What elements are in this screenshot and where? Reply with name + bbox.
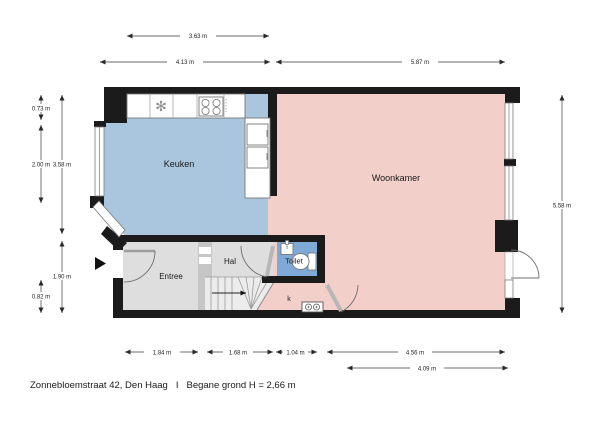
dim-top-2: 4.13 m (176, 60, 194, 66)
wall-entree-west-b (113, 278, 123, 314)
appliance-icon (247, 147, 268, 168)
wall-northwest-corner (104, 87, 127, 123)
sink-icon: ✻ (155, 98, 167, 114)
wall-toilet-south (262, 276, 325, 283)
window-cap (94, 121, 106, 127)
footer-caption: Zonnebloemstraat 42, Den HaagIBegane gro… (30, 380, 296, 391)
dim-bottom-1: 1.84 m (153, 350, 171, 356)
wall-toilet-east (317, 235, 325, 283)
wall-southeast-corner (505, 298, 520, 318)
dim-top-3: 5.87 m (411, 60, 429, 66)
woonkamer-label: Woonkamer (372, 173, 420, 183)
toilet-label: Toilet (285, 257, 303, 266)
wall-keuken-south (113, 235, 325, 242)
wall-east-mullion (504, 159, 516, 166)
garden-door-arc (511, 250, 539, 278)
chimney-breast (495, 220, 518, 252)
entree-label: Entree (159, 272, 183, 281)
entrance-arrow-icon (95, 257, 106, 270)
dim-left-5: 0.82 m (32, 295, 50, 301)
floor-plan: ✻ (0, 0, 600, 424)
dim-bottom-3: 1.04 m (286, 350, 304, 356)
closet-label: k (287, 296, 291, 303)
door-opening-entree (113, 250, 123, 278)
wall-northeast-corner (505, 87, 520, 103)
dim-right-1: 5.58 m (553, 204, 571, 210)
partition-jamb (199, 247, 211, 254)
washing-machine-icon (302, 302, 323, 312)
keuken-label: Keuken (164, 159, 195, 169)
appliance-handle (267, 153, 269, 160)
dim-left-4: 1.90 m (53, 275, 71, 281)
kitchen-counter (127, 94, 245, 118)
separator-text: I (176, 380, 179, 391)
wall-north (113, 87, 520, 94)
dim-bottom-2: 1.68 m (229, 350, 247, 356)
basin-tap (286, 241, 289, 245)
address-text: Zonnebloemstraat 42, Den Haag (30, 380, 168, 391)
partition-jamb (199, 257, 211, 264)
window-east-3 (505, 280, 513, 298)
entree-floor (117, 237, 198, 314)
door-opening-east (505, 252, 513, 280)
dim-left-2: 2.00 m (32, 163, 50, 169)
dim-bottom-4: 4.56 m (406, 350, 424, 356)
appliance-handle (267, 130, 269, 137)
appliance-icon (247, 124, 268, 145)
floor-detail-text: Begane grond H = 2,66 m (186, 380, 295, 391)
dim-left-3: 3.58 m (53, 163, 71, 169)
dim-left-1: 0.73 m (32, 107, 50, 113)
wall-entree-west-a (113, 240, 123, 250)
stove-icon (199, 97, 226, 116)
hal-label: Hal (224, 257, 236, 266)
dim-top-1: 3.63 m (189, 34, 207, 40)
dim-bottom-5: 4.09 m (418, 366, 436, 372)
